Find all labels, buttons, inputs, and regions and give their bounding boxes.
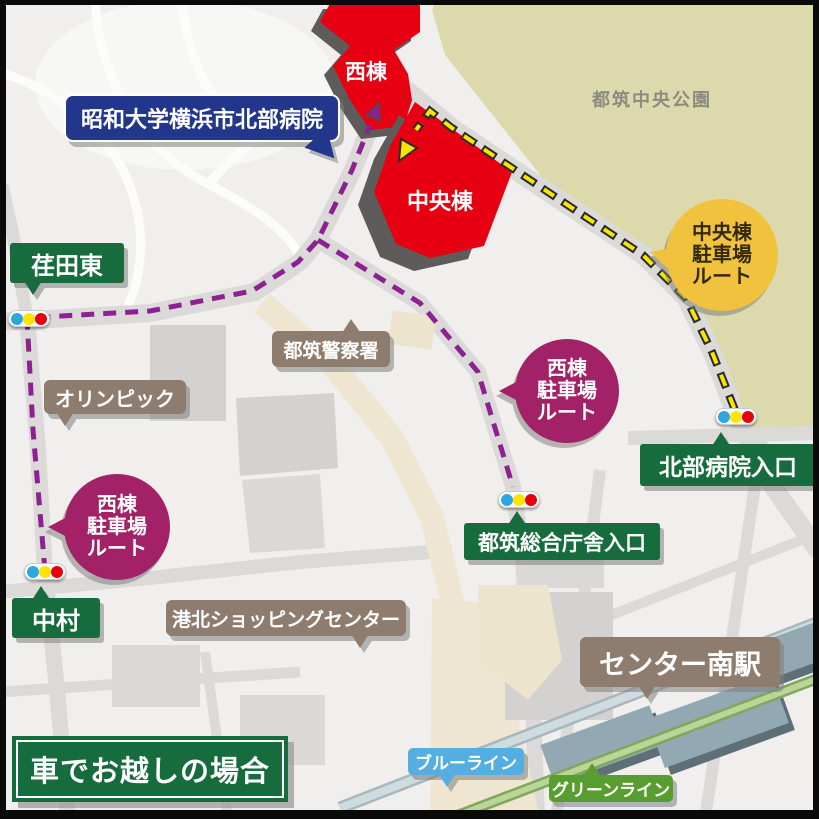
intersection-text: 中村 [32,601,80,636]
frame-border [0,810,819,819]
bubble-text: ルート [692,266,752,288]
landmark-text: オリンピック [55,383,175,412]
signal-red-dot [742,411,754,423]
landmark-text: センター南駅 [599,643,761,682]
callout-tail [48,516,69,538]
hospital-name-text: 昭和大学横浜市北部病院 [81,102,323,134]
traffic-signal-icon [715,408,757,425]
bubble-text: 駐車場 [692,244,752,266]
park-label: 都筑中央公園 [592,86,712,112]
central-wing-label: 中央棟 [392,184,488,216]
callout-tail [351,634,369,648]
intersection-label-hokubu-entrance: 北部病院入口 [640,444,816,486]
west-parking-route-bubble-south: 西棟 駐車場 ルート [64,474,170,580]
green-line-label: グリーンライン [549,775,673,802]
frame-border [813,0,819,819]
rail-line-text: ブルーライン [415,749,517,774]
west-wing-label: 西棟 [330,56,402,86]
signal-red-dot [525,494,537,506]
map-title-text: 車でお越しの場合 [16,740,284,798]
signal-yellow-dot [23,313,35,325]
intersection-text: 都筑総合庁舎入口 [478,527,646,557]
landmark-label-police: 都筑警察署 [272,331,390,367]
frame-border [0,0,819,5]
intersection-label-nakamura: 中村 [12,598,100,638]
intersection-label-government-entrance: 都筑総合庁舎入口 [464,523,660,560]
bubble-text: 駐車場 [87,516,147,538]
signal-red-dot [35,313,47,325]
traffic-signal-icon [8,310,50,327]
bubble-text: ルート [87,538,147,560]
callout-tail [56,412,74,426]
bubble-text: 駐車場 [537,380,597,402]
traffic-signal-icon [24,563,66,580]
signal-yellow-dot [39,566,51,578]
callout-tail [499,380,520,402]
callout-tail [32,586,50,600]
frame-border [0,0,6,819]
access-map: 昭和大学横浜市北部病院 西棟 中央棟 都筑中央公園 荏田東 中村 北部病院入口 … [0,0,819,819]
blue-line-label: ブルーライン [408,748,524,775]
callout-tail [438,773,456,787]
hospital-name-label: 昭和大学横浜市北部病院 [64,94,340,142]
signal-blue-dot [27,566,39,578]
bubble-text: ルート [537,402,597,424]
callout-tail [24,281,42,295]
signal-red-dot [51,566,63,578]
intersection-label-edahigashi: 荏田東 [10,243,124,283]
traffic-signal-icon [498,491,540,508]
signal-yellow-dot [730,411,742,423]
west-parking-route-bubble-east: 西棟 駐車場 ルート [515,339,619,443]
central-parking-route-bubble: 中央棟 駐車場 ルート [666,199,778,311]
landmark-label-kohoku-sc: 港北ショッピングセンター [166,600,406,636]
rail-line-text: グリーンライン [552,776,670,801]
signal-blue-dot [11,313,23,325]
intersection-text: 北部病院入口 [659,448,797,482]
landmark-label-center-minami-station: センター南駅 [580,637,780,687]
bubble-text: 西棟 [97,494,137,516]
signal-blue-dot [718,411,730,423]
bubble-text: 西棟 [547,358,587,380]
map-title-banner: 車でお越しの場合 [12,736,288,802]
signal-blue-dot [501,494,513,506]
landmark-label-olympic: オリンピック [44,380,186,414]
signal-yellow-dot [513,494,525,506]
callout-tail [583,763,601,777]
bubble-text: 中央棟 [692,222,752,244]
landmark-text: 港北ショッピングセンター [172,605,400,632]
callout-tail [638,685,656,699]
callout-tail [342,319,360,333]
callout-tail [508,511,526,525]
landmark-text: 都筑警察署 [283,336,378,363]
intersection-text: 荏田東 [31,246,103,281]
callout-tail [712,432,730,446]
